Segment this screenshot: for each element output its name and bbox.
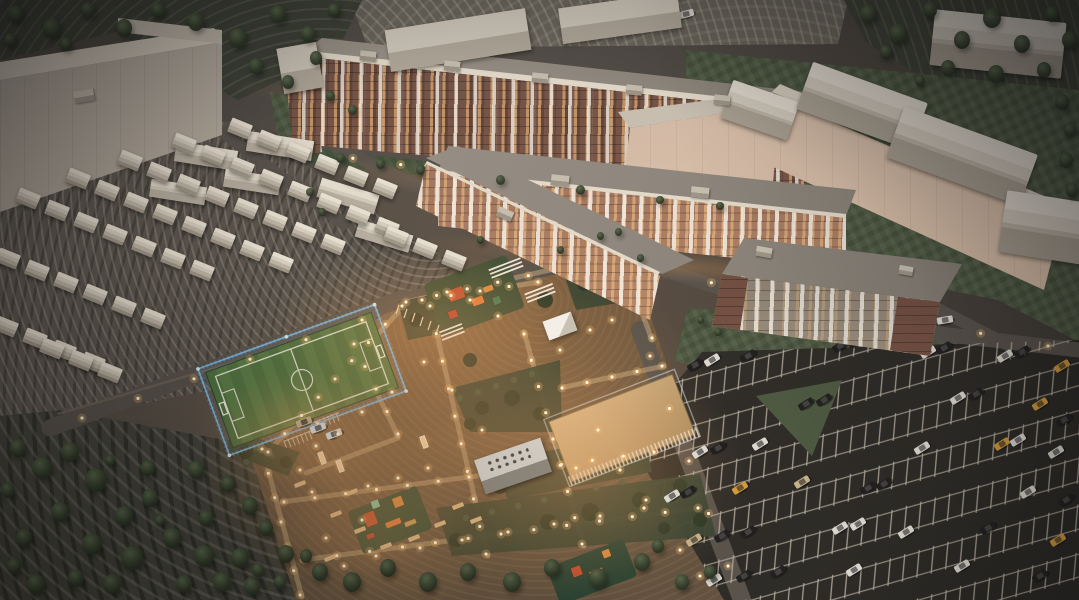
tree xyxy=(68,569,84,587)
tree xyxy=(1037,62,1051,77)
garage-box xyxy=(343,165,369,187)
utility-building xyxy=(474,438,552,495)
garage-box xyxy=(189,259,215,281)
tree xyxy=(1064,123,1076,136)
garage-box xyxy=(53,271,79,293)
tree xyxy=(326,91,335,101)
garage-box xyxy=(44,199,70,221)
tree xyxy=(300,549,312,562)
tree xyxy=(270,5,286,23)
tree xyxy=(10,439,26,457)
tree xyxy=(880,45,892,58)
tree xyxy=(637,254,644,262)
tree xyxy=(27,574,45,594)
garage-box xyxy=(412,237,438,259)
tree xyxy=(301,26,315,41)
tree xyxy=(163,528,181,548)
garage-box xyxy=(233,197,259,219)
garage-box xyxy=(160,247,186,269)
tree xyxy=(103,574,121,594)
tree xyxy=(213,572,231,592)
structures-layer xyxy=(0,0,1079,600)
garage-box xyxy=(262,209,288,231)
tree xyxy=(8,5,24,23)
tree xyxy=(229,28,247,48)
tree xyxy=(231,548,249,568)
garage-box xyxy=(204,185,230,207)
tree xyxy=(43,18,61,38)
tree xyxy=(1059,152,1073,167)
tree xyxy=(988,65,1004,83)
tree xyxy=(376,159,385,169)
tree xyxy=(477,236,484,244)
tree xyxy=(32,457,52,479)
garage-box xyxy=(320,233,346,255)
tree xyxy=(282,75,294,88)
tree xyxy=(889,24,907,44)
tree xyxy=(343,572,361,592)
garage-box xyxy=(24,259,50,281)
tree xyxy=(249,58,263,73)
tree xyxy=(1062,31,1078,49)
tree xyxy=(274,575,286,588)
tree xyxy=(194,545,214,567)
tree xyxy=(652,539,664,552)
garage-box xyxy=(181,215,207,237)
garage-box xyxy=(102,223,128,245)
garage-box xyxy=(146,161,172,183)
garage-box xyxy=(0,315,19,337)
tree xyxy=(1055,94,1069,109)
tree xyxy=(589,568,607,588)
garage-box xyxy=(111,295,137,317)
tree xyxy=(923,2,937,17)
garage-box xyxy=(140,307,166,329)
garage-box xyxy=(131,235,157,257)
garage-box xyxy=(291,221,317,243)
garage-box xyxy=(82,283,108,305)
garage-box xyxy=(73,211,99,233)
tree xyxy=(310,51,322,64)
garage-box xyxy=(94,179,120,201)
tree xyxy=(460,563,476,581)
tree xyxy=(116,19,132,37)
tree xyxy=(105,455,115,466)
tree xyxy=(188,461,204,479)
roof-box xyxy=(626,84,643,96)
tree xyxy=(61,442,79,462)
tree xyxy=(151,2,165,17)
tree xyxy=(634,553,650,571)
tree xyxy=(328,3,340,16)
tree xyxy=(4,33,16,46)
tree xyxy=(576,185,585,195)
garage-box xyxy=(97,361,123,383)
tree xyxy=(312,563,328,581)
tree xyxy=(141,460,155,475)
tree xyxy=(278,545,294,563)
tree xyxy=(16,529,32,547)
tree xyxy=(416,165,425,175)
tree xyxy=(915,75,925,86)
tree xyxy=(199,510,213,525)
tree xyxy=(259,520,273,535)
tree xyxy=(1,482,15,497)
kiosk xyxy=(542,311,577,340)
roof-box xyxy=(898,264,913,275)
garage-box xyxy=(210,227,236,249)
tree xyxy=(244,577,260,595)
tree xyxy=(188,13,204,31)
tree xyxy=(1014,35,1030,53)
tree xyxy=(1045,6,1059,21)
tree xyxy=(142,489,158,507)
roof-box xyxy=(444,60,461,72)
tree xyxy=(51,502,69,522)
tree xyxy=(1066,183,1078,196)
tree xyxy=(954,31,970,49)
tree xyxy=(7,558,21,573)
garage-box xyxy=(152,203,178,225)
tree xyxy=(318,208,326,217)
roof-box xyxy=(714,94,731,106)
aerial-render xyxy=(0,0,1079,600)
tree xyxy=(714,328,722,337)
tree xyxy=(85,468,107,492)
tree xyxy=(615,228,622,236)
tree xyxy=(60,37,72,50)
tree xyxy=(115,506,133,526)
roof-box xyxy=(690,186,709,199)
tree xyxy=(544,559,560,577)
tree xyxy=(121,546,143,570)
garage-box xyxy=(239,239,265,261)
tree xyxy=(336,153,345,163)
tree xyxy=(675,574,689,589)
garage-box xyxy=(123,191,149,213)
tree xyxy=(697,316,704,324)
tree xyxy=(941,60,955,75)
roof-box xyxy=(550,174,569,187)
tree xyxy=(155,515,165,526)
tree xyxy=(597,232,604,240)
roof-box xyxy=(360,50,377,62)
tree xyxy=(503,572,521,592)
roof-box xyxy=(532,72,549,84)
tree xyxy=(380,559,396,577)
tree xyxy=(82,533,102,555)
tree xyxy=(221,476,235,491)
tree xyxy=(860,5,876,23)
tree xyxy=(557,246,564,254)
tree xyxy=(176,575,192,593)
tree xyxy=(496,175,505,185)
tree xyxy=(983,8,1001,28)
tree xyxy=(81,2,95,17)
tree xyxy=(306,188,314,197)
tree xyxy=(419,572,437,592)
tree xyxy=(242,497,258,515)
garage-box xyxy=(441,249,467,271)
garage-box xyxy=(0,247,21,269)
tree xyxy=(704,565,716,578)
warehouse xyxy=(558,0,682,44)
tree xyxy=(252,563,264,576)
garage-box xyxy=(268,251,294,273)
tree xyxy=(348,105,357,115)
